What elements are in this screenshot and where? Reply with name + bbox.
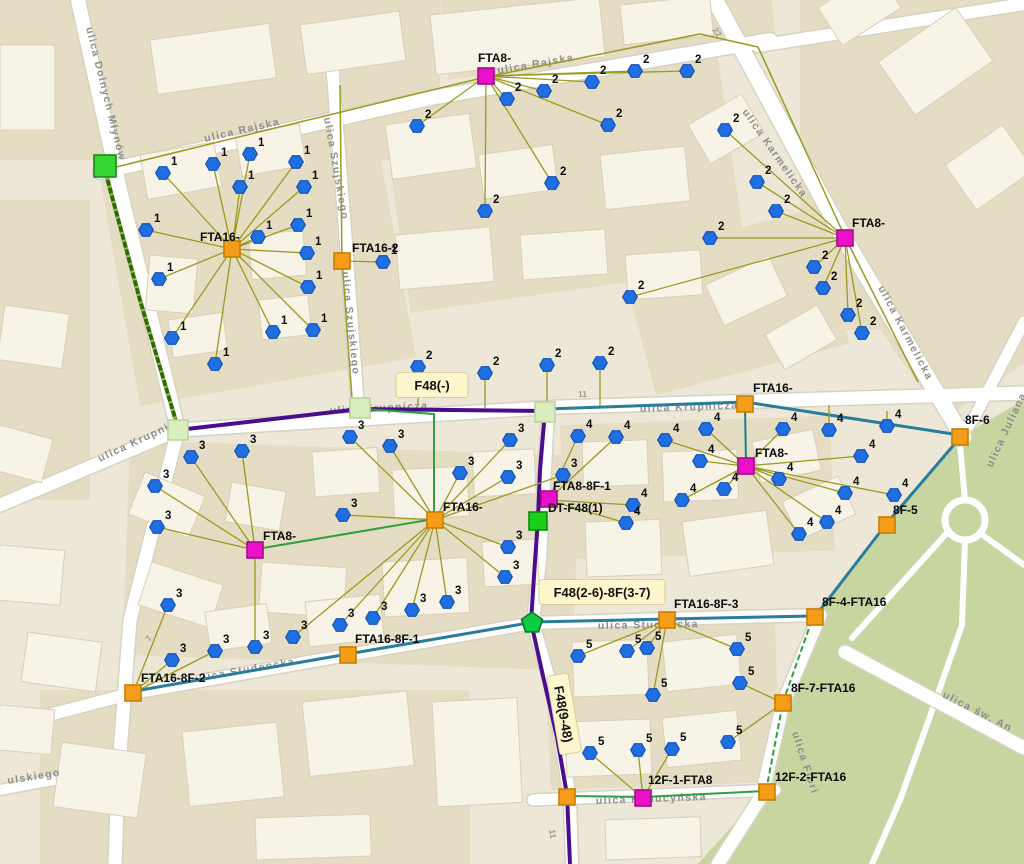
subscriber-count: 2 [560,166,566,178]
device-label: FTA8- [755,446,788,460]
passage-node[interactable] [350,398,370,418]
subscriber-node[interactable] [152,273,167,286]
fta8-splice-node[interactable] [738,458,754,474]
device-label: FTA8- [263,529,296,543]
subscriber-count: 3 [163,469,169,481]
subscriber-node[interactable] [440,596,455,609]
subscriber-node[interactable] [822,424,837,437]
subscriber-node[interactable] [699,423,714,436]
subscriber-count: 5 [745,632,752,644]
subscriber-node[interactable] [291,219,306,232]
subscriber-count: 4 [902,478,909,490]
subscriber-node[interactable] [266,326,281,339]
device-label: FTA16- [200,230,240,244]
subscriber-count: 1 [306,208,313,220]
building [395,227,494,290]
subscriber-count: 3 [165,510,171,522]
fta-splice-node[interactable] [737,396,753,412]
fta8-splice-node[interactable] [478,68,494,84]
subscriber-node[interactable] [156,167,171,180]
subscriber-node[interactable] [693,455,708,468]
subscriber-count: 2 [695,54,701,66]
subscriber-count: 4 [835,505,842,517]
label-box-text: F48(2-6)-8F(3-7) [554,585,651,600]
building [0,705,55,755]
device-label: FTA16- [753,381,793,395]
subscriber-count: 2 [733,113,739,125]
subscriber-node[interactable] [545,177,560,190]
subscriber-node[interactable] [306,324,321,337]
subscriber-count: 3 [516,460,522,472]
subscriber-node[interactable] [376,256,391,269]
subscriber-node[interactable] [184,451,199,464]
device-label: FTA8-8F-1 [553,479,611,493]
subscriber-node[interactable] [855,327,870,340]
subscriber-node[interactable] [503,434,518,447]
subscriber-count: 3 [223,634,229,646]
building [478,145,559,200]
subscriber-count: 2 [608,346,614,358]
subscriber-node[interactable] [405,604,420,617]
subscriber-count: 1 [316,270,323,282]
subscriber-node[interactable] [366,612,381,625]
device-label: 12F-1-FTA8 [648,773,713,787]
subscriber-count: 4 [624,420,631,432]
building [432,698,522,807]
device-label: FTA8- [478,51,511,65]
subscriber-count: 4 [586,419,593,431]
building [21,632,102,692]
fta-splice-node[interactable] [952,429,968,445]
subscriber-count: 3 [518,423,524,435]
fta-splice-node[interactable] [775,695,791,711]
fta-splice-node[interactable] [125,685,141,701]
subscriber-count: 3 [513,560,519,572]
subscriber-count: 1 [248,170,255,182]
subscriber-count: 1 [321,313,328,325]
fta-splice-node[interactable] [807,609,823,625]
subscriber-count: 5 [586,639,593,651]
device-label: FTA16-8F-1 [355,632,420,646]
subscriber-node[interactable] [233,181,248,194]
subscriber-node[interactable] [251,231,266,244]
subscriber-node[interactable] [658,434,673,447]
subscriber-count: 2 [600,65,606,77]
cable-link-fta16-fta8[interactable] [745,406,746,464]
fta-splice-node[interactable] [879,517,895,533]
subscriber-count: 1 [167,262,174,274]
subscriber-node[interactable] [453,467,468,480]
subscriber-node[interactable] [717,483,732,496]
house-number: 11 [578,389,587,399]
fta-splice-node[interactable] [334,253,350,269]
subscriber-count: 5 [598,736,605,748]
subscriber-node[interactable] [646,689,661,702]
subscriber-node[interactable] [333,619,348,632]
building [312,447,380,496]
subscriber-node[interactable] [150,521,165,534]
device-label: 12F-2-FTA16 [775,770,846,784]
subscriber-node[interactable] [620,645,635,658]
subscriber-node[interactable] [628,65,643,78]
building [600,146,690,210]
subscriber-node[interactable] [571,430,586,443]
subscriber-count: 3 [301,620,307,632]
subscriber-count: 3 [250,434,256,446]
subscriber-count: 2 [425,109,431,121]
subscriber-node[interactable] [235,445,250,458]
subscriber-node[interactable] [478,367,493,380]
subscriber-count: 3 [351,498,357,510]
subscriber-node[interactable] [609,431,624,444]
fta8-splice-node[interactable] [635,790,651,806]
subscriber-count: 3 [455,585,461,597]
subscriber-node[interactable] [571,650,586,663]
subscriber-count: 2 [784,194,790,206]
building [572,639,649,697]
fta-splice-node[interactable] [427,512,443,528]
subscriber-count: 4 [837,413,844,425]
subscriber-node[interactable] [854,450,869,463]
building [53,742,146,818]
subscriber-count: 1 [304,145,311,157]
subscriber-count: 3 [199,440,205,452]
device-label: 8F-4-FTA16 [822,595,887,609]
subscriber-node[interactable] [537,85,552,98]
subscriber-count: 5 [635,634,642,646]
subscriber-node[interactable] [501,471,516,484]
subscriber-count: 4 [634,506,641,518]
subscriber-node[interactable] [733,677,748,690]
subscriber-count: 4 [869,439,876,451]
subscriber-node[interactable] [208,358,223,371]
map-canvas[interactable]: ulica Dolnych Młynówulica Rajskaulica Ra… [0,0,1024,864]
subscriber-count: 1 [281,315,288,327]
subscriber-node[interactable] [206,158,221,171]
subscriber-node[interactable] [300,247,315,260]
subscriber-count: 2 [765,165,771,177]
subscriber-node[interactable] [248,641,263,654]
subscriber-node[interactable] [675,494,690,507]
subscriber-count: 2 [493,194,499,206]
subscriber-count: 2 [856,298,862,310]
subscriber-node[interactable] [841,309,856,322]
subscriber-count: 2 [552,74,558,86]
subscriber-node[interactable] [383,440,398,453]
fta-splice-node[interactable] [340,647,356,663]
subscriber-node[interactable] [165,332,180,345]
fta-splice-node[interactable] [759,784,775,800]
device-label: FTA16-2 [352,241,399,255]
subscriber-count: 2 [822,250,828,262]
subscriber-node[interactable] [411,361,426,374]
subscriber-count: 4 [641,488,648,500]
subscriber-node[interactable] [161,599,176,612]
subscriber-count: 2 [515,82,521,94]
subscriber-count: 2 [643,54,649,66]
subscriber-node[interactable] [165,654,180,667]
subscriber-node[interactable] [680,65,695,78]
subscriber-count: 5 [748,666,755,678]
subscriber-node[interactable] [286,631,301,644]
subscriber-node[interactable] [410,120,425,133]
subscriber-node[interactable] [880,420,895,433]
subscriber-count: 3 [571,458,577,470]
subscriber-count: 3 [263,630,269,642]
subscriber-count: 4 [714,412,721,424]
subscriber-node[interactable] [498,571,513,584]
subscriber-count: 4 [791,412,798,424]
subscriber-count: 1 [171,156,178,168]
fta-splice-node[interactable] [659,612,675,628]
subscriber-count: 3 [468,456,474,468]
device-label: 8F-5 [893,503,918,517]
subscriber-count: 3 [381,601,387,613]
subscriber-node[interactable] [139,224,154,237]
subscriber-node[interactable] [730,643,745,656]
fta-splice-node[interactable] [559,789,575,805]
subscriber-count: 2 [638,280,644,292]
subscriber-node[interactable] [500,93,515,106]
subscriber-node[interactable] [838,487,853,500]
map-stage: ulica Dolnych Młynówulica Rajskaulica Ra… [0,0,1024,864]
building [182,722,284,807]
subscriber-node[interactable] [718,124,733,137]
subscriber-node[interactable] [623,291,638,304]
building [385,113,477,179]
subscriber-count: 2 [718,221,724,233]
subscriber-node[interactable] [619,517,634,530]
subscriber-count: 1 [315,236,322,248]
subscriber-count: 4 [807,517,814,529]
subscriber-count: 3 [398,429,404,441]
access-node[interactable] [94,155,116,177]
subscriber-count: 2 [426,350,432,362]
subscriber-count: 1 [154,213,161,225]
passage-node[interactable] [168,420,188,440]
subscriber-count: 5 [655,631,662,643]
subscriber-node[interactable] [208,645,223,658]
subscriber-node[interactable] [776,423,791,436]
subscriber-count: 5 [661,678,668,690]
subscriber-node[interactable] [721,736,736,749]
subscriber-count: 4 [673,423,680,435]
subscriber-count: 3 [516,530,522,542]
dt-closure-node[interactable] [529,512,547,530]
fta8-splice-node[interactable] [247,542,263,558]
subscriber-node[interactable] [540,359,555,372]
subscriber-count: 5 [646,733,653,745]
subscriber-node[interactable] [807,261,822,274]
subscriber-count: 3 [358,420,364,432]
subscriber-node[interactable] [297,181,312,194]
building [255,814,371,860]
subscriber-count: 3 [180,643,186,655]
subscriber-count: 5 [736,725,743,737]
subscriber-count: 2 [831,271,837,283]
device-label: FTA16-8F-2 [141,671,206,685]
subscriber-node[interactable] [593,357,608,370]
subscriber-node[interactable] [148,480,163,493]
subscriber-node[interactable] [601,119,616,132]
cable-label-box: F48(-) [396,373,468,398]
device-label: 8F-7-FTA16 [791,681,856,695]
subscriber-count: 3 [348,608,354,620]
building [0,305,69,369]
subscriber-count: 2 [870,316,876,328]
subscriber-count: 1 [223,347,230,359]
passage-node[interactable] [535,402,555,422]
subscriber-count: 4 [895,409,902,421]
device-label: 8F-6 [965,413,990,427]
subscriber-node[interactable] [772,473,787,486]
building [605,817,701,860]
subscriber-node[interactable] [336,509,351,522]
subscriber-node[interactable] [301,281,316,294]
subscriber-count: 4 [708,444,715,456]
device-label: FTA16- [443,500,483,514]
subscriber-count: 1 [266,220,273,232]
building [520,229,608,280]
cable-label-box: F48(2-6)-8F(3-7) [539,580,665,605]
subscriber-count: 1 [312,170,319,182]
building [682,510,774,576]
subscriber-node[interactable] [585,76,600,89]
subscriber-node[interactable] [289,156,304,169]
device-label: DT-F48(1) [548,501,603,515]
fta8-splice-node[interactable] [837,230,853,246]
subscriber-node[interactable] [816,282,831,295]
label-box-text: F48(-) [414,378,449,393]
subscriber-node[interactable] [478,205,493,218]
subscriber-count: 1 [258,137,265,149]
subscriber-count: 2 [493,356,499,368]
subscriber-node[interactable] [583,747,598,760]
subscriber-node[interactable] [343,431,358,444]
subscriber-node[interactable] [243,148,258,161]
subscriber-count: 1 [221,147,228,159]
subscriber-node[interactable] [769,205,784,218]
subscriber-count: 3 [176,588,182,600]
subscriber-node[interactable] [501,541,516,554]
subscriber-node[interactable] [820,516,835,529]
building [625,250,703,300]
subscriber-node[interactable] [631,744,646,757]
device-label: FTA16-8F-3 [674,597,739,611]
subscriber-count: 3 [420,593,426,605]
subscriber-count: 1 [180,321,187,333]
subscriber-count: 2 [616,108,622,120]
subscriber-node[interactable] [665,743,680,756]
subscriber-node[interactable] [750,176,765,189]
building [0,545,65,605]
subscriber-count: 4 [690,483,697,495]
subscriber-count: 5 [680,732,687,744]
subscriber-node[interactable] [703,232,718,245]
subscriber-node[interactable] [640,642,655,655]
subscriber-count: 2 [555,348,561,360]
building [0,45,55,130]
building [662,634,742,692]
subscriber-node[interactable] [792,528,807,541]
building [302,691,414,777]
device-label: FTA8- [852,216,885,230]
subscriber-count: 4 [853,476,860,488]
subscriber-count: 4 [787,462,794,474]
subscriber-node[interactable] [887,489,902,502]
